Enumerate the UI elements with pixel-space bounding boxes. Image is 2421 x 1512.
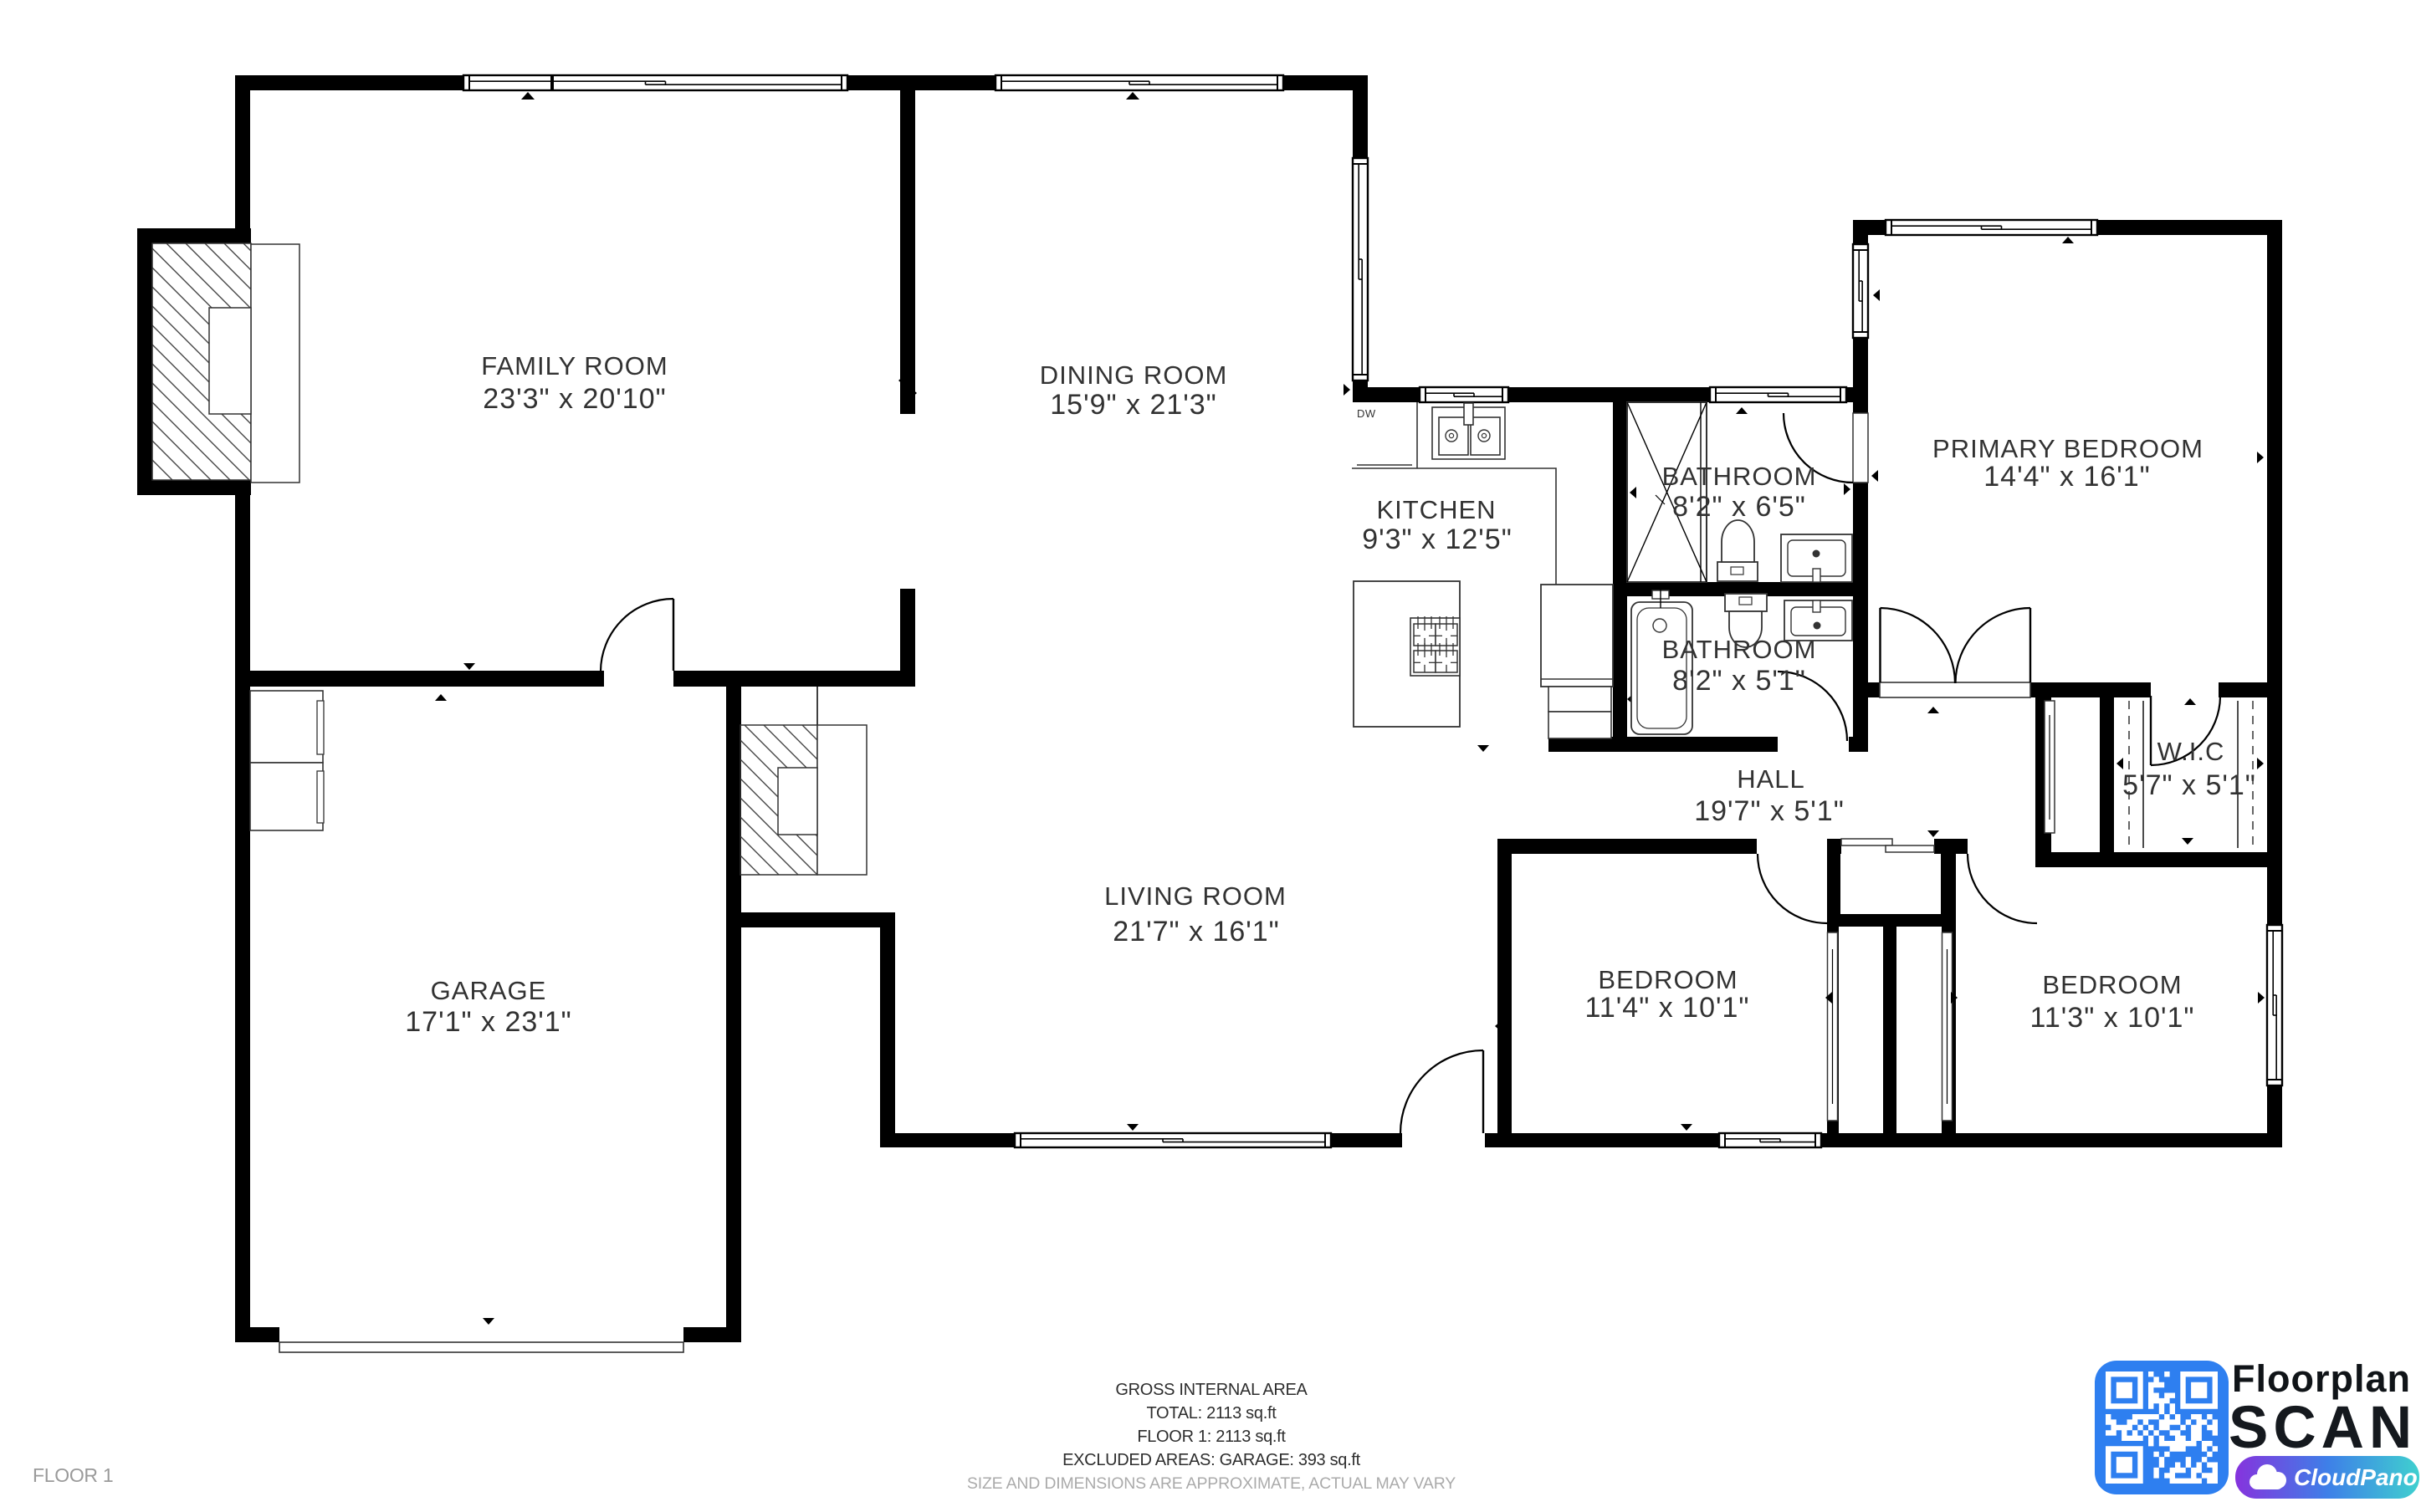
svg-text:DINING ROOM: DINING ROOM xyxy=(1040,360,1228,390)
svg-text:15'9" x 21'3": 15'9" x 21'3" xyxy=(1050,389,1216,421)
svg-text:SCAN: SCAN xyxy=(2229,1395,2417,1461)
svg-text:8'2" x 5'1": 8'2" x 5'1" xyxy=(1672,665,1806,697)
svg-text:14'4" x 16'1": 14'4" x 16'1" xyxy=(1983,461,2150,493)
svg-text:5'7" x 5'1": 5'7" x 5'1" xyxy=(2122,769,2256,801)
svg-text:FLOOR 1: 2113 sq.ft: FLOOR 1: 2113 sq.ft xyxy=(1137,1428,1286,1446)
svg-text:GROSS INTERNAL AREA: GROSS INTERNAL AREA xyxy=(1115,1381,1308,1399)
svg-text:SIZE AND DIMENSIONS ARE APPROX: SIZE AND DIMENSIONS ARE APPROXIMATE, ACT… xyxy=(967,1474,1456,1493)
svg-text:PRIMARY BEDROOM: PRIMARY BEDROOM xyxy=(1932,434,2203,463)
svg-text:CloudPano: CloudPano xyxy=(2294,1464,2418,1490)
svg-text:BEDROOM: BEDROOM xyxy=(2042,970,2182,999)
svg-text:8'2" x 6'5": 8'2" x 6'5" xyxy=(1672,491,1806,523)
svg-text:HALL: HALL xyxy=(1737,764,1805,794)
svg-text:KITCHEN: KITCHEN xyxy=(1376,495,1496,524)
svg-text:BATHROOM: BATHROOM xyxy=(1662,635,1817,664)
svg-text:17'1" x 23'1": 17'1" x 23'1" xyxy=(405,1006,571,1038)
svg-text:BATHROOM: BATHROOM xyxy=(1662,462,1817,491)
svg-text:FLOOR 1: FLOOR 1 xyxy=(33,1464,113,1486)
svg-text:FAMILY ROOM: FAMILY ROOM xyxy=(481,351,668,381)
svg-text:19'7" x 5'1": 19'7" x 5'1" xyxy=(1694,795,1845,827)
svg-text:EXCLUDED AREAS: GARAGE: 393 sq: EXCLUDED AREAS: GARAGE: 393 sq.ft xyxy=(1062,1451,1361,1469)
svg-text:21'7" x 16'1": 21'7" x 16'1" xyxy=(1113,916,1279,948)
svg-text:23'3" x 20'10": 23'3" x 20'10" xyxy=(483,383,666,415)
svg-text:Floorplan: Floorplan xyxy=(2232,1357,2411,1400)
svg-text:9'3" x 12'5": 9'3" x 12'5" xyxy=(1362,524,1512,555)
svg-text:TOTAL: 2113 sq.ft: TOTAL: 2113 sq.ft xyxy=(1147,1404,1277,1423)
svg-text:11'4" x 10'1": 11'4" x 10'1" xyxy=(1585,992,1750,1024)
svg-text:GARAGE: GARAGE xyxy=(431,976,547,1005)
svg-text:DW: DW xyxy=(1357,407,1376,420)
svg-text:BEDROOM: BEDROOM xyxy=(1598,965,1738,994)
svg-text:LIVING ROOM: LIVING ROOM xyxy=(1104,881,1287,911)
svg-text:11'3" x 10'1": 11'3" x 10'1" xyxy=(2030,1002,2195,1034)
svg-text:W.I.C: W.I.C xyxy=(2157,737,2225,766)
